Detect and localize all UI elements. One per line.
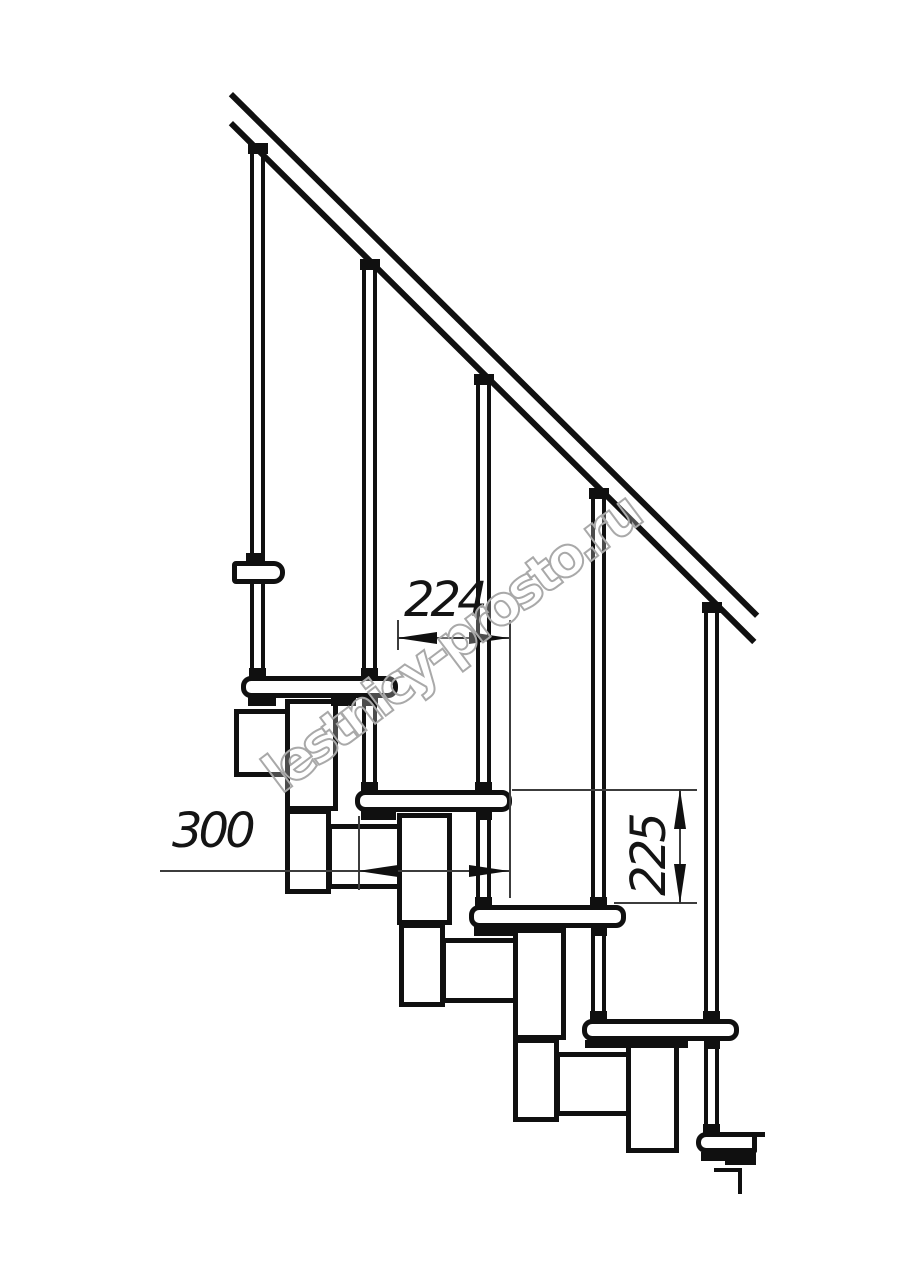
collar-tread-2-baluster-1	[249, 668, 266, 677]
collar-bracket-baluster-1	[246, 553, 263, 562]
collar-tread-4-baluster-3	[475, 897, 492, 906]
module-2-lower-box	[285, 809, 331, 894]
collar-tread-5-baluster-4	[590, 1011, 607, 1020]
baluster-5	[704, 612, 719, 1138]
collar-tread-3-baluster-2	[361, 782, 378, 791]
dimension-line-300	[160, 870, 511, 872]
collar-tread-6-baluster-5	[703, 1124, 720, 1133]
module-4-upper-box	[513, 928, 566, 1040]
extension-line-300-left	[358, 816, 360, 890]
module-2-seat-box	[327, 824, 406, 889]
dimension-label-300: 300	[172, 807, 252, 855]
baluster-cap-2	[360, 259, 380, 270]
collar-tread-5-baluster-5	[703, 1011, 720, 1020]
mount-plate-tread-4	[474, 926, 517, 936]
arrowhead-300-right	[469, 865, 509, 877]
module-3-lower-box	[399, 923, 445, 1007]
mount-plate-tread-3	[361, 811, 396, 820]
upper-rail-bracket	[232, 561, 285, 584]
extension-line-225-top	[512, 789, 697, 791]
collar-under-tread-3-baluster-3	[476, 812, 492, 820]
module-4-seat-box	[555, 1052, 635, 1116]
baluster-1	[250, 153, 265, 680]
floor-cut-line-vertical	[738, 1168, 742, 1194]
tread-6-edge-stub	[751, 1132, 765, 1137]
tread-5	[582, 1019, 739, 1041]
baluster-cap-5	[702, 602, 722, 613]
extension-line-right-shared	[509, 620, 511, 898]
collar-tread-4-baluster-4	[590, 897, 607, 906]
module-3-upper-box	[397, 813, 452, 925]
baluster-cap-1	[248, 143, 268, 154]
module-4-lower-box	[513, 1038, 559, 1122]
tread-6-partial	[696, 1132, 757, 1153]
collar-under-tread-4-baluster-4	[591, 928, 607, 936]
mount-plate-tread-6-step	[725, 1158, 756, 1165]
baluster-4	[591, 499, 606, 1025]
collar-under-tread-5-baluster-5	[704, 1041, 720, 1049]
tread-3	[355, 790, 512, 812]
staircase-technical-drawing: 224 300 225 lestnicy-prosto.ru	[0, 0, 914, 1280]
module-5-upper-box	[626, 1042, 679, 1153]
tread-4	[469, 905, 626, 928]
module-3-seat-box	[441, 938, 520, 1003]
mount-plate-tread-5	[585, 1040, 688, 1048]
arrowhead-300-left	[358, 865, 398, 877]
handrail-top-line	[229, 92, 759, 618]
collar-tread-3-baluster-3	[475, 782, 492, 791]
mount-plate-tread-2-left	[248, 697, 276, 706]
dimension-label-225: 225	[625, 796, 679, 916]
baluster-cap-3	[474, 374, 494, 385]
